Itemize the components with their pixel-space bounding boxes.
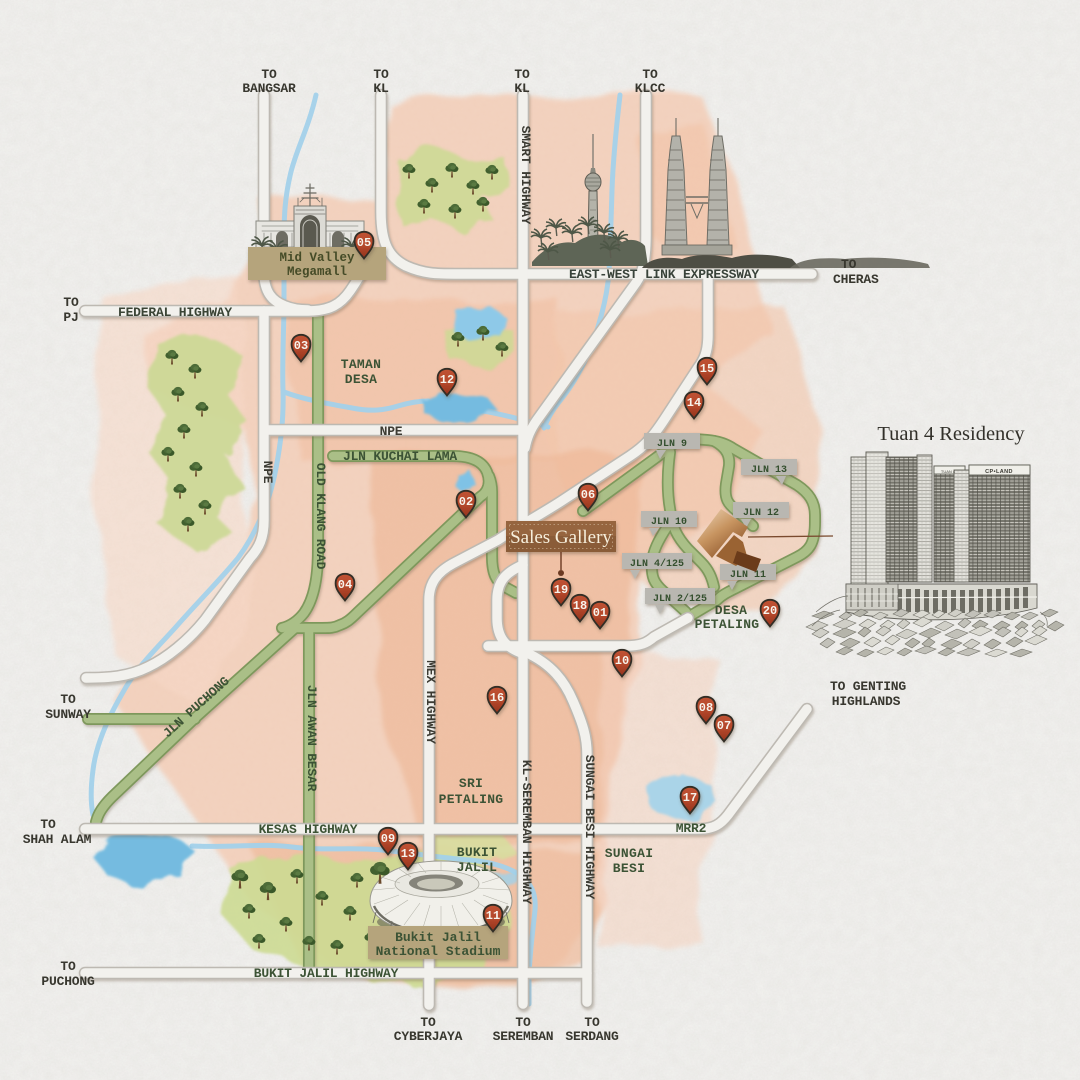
svg-text:08: 08 [699, 701, 713, 715]
svg-text:TO: TO [642, 67, 658, 82]
svg-text:TO GENTING: TO GENTING [830, 679, 906, 694]
svg-text:TO: TO [63, 295, 79, 310]
svg-text:TO: TO [60, 959, 76, 974]
svg-text:06: 06 [581, 488, 595, 502]
svg-text:NPE: NPE [380, 424, 403, 439]
svg-text:17: 17 [683, 791, 697, 805]
svg-text:SMART HIGHWAY: SMART HIGHWAY [518, 126, 533, 225]
svg-text:Mid Valley: Mid Valley [279, 251, 355, 265]
svg-text:11: 11 [486, 909, 500, 923]
svg-text:TAMAN: TAMAN [341, 357, 382, 372]
svg-text:FEDERAL HIGHWAY: FEDERAL HIGHWAY [118, 305, 232, 320]
svg-text:TO: TO [514, 67, 530, 82]
svg-text:TO: TO [584, 1015, 600, 1030]
svg-text:20: 20 [763, 604, 777, 618]
svg-text:Megamall: Megamall [287, 265, 347, 279]
svg-text:CP•LAND: CP•LAND [985, 469, 1013, 475]
svg-text:TO: TO [261, 67, 277, 82]
svg-text:BESI: BESI [613, 861, 645, 876]
svg-text:SERDANG: SERDANG [565, 1029, 619, 1044]
svg-text:JALIL: JALIL [457, 860, 498, 875]
svg-text:KL: KL [514, 81, 530, 96]
svg-text:CHERAS: CHERAS [833, 272, 879, 287]
svg-text:15: 15 [700, 362, 714, 376]
svg-text:MEX HIGHWAY: MEX HIGHWAY [423, 660, 438, 744]
svg-text:TO: TO [373, 67, 389, 82]
svg-text:09: 09 [381, 832, 395, 846]
svg-text:Sales Gallery: Sales Gallery [510, 527, 612, 548]
svg-text:14: 14 [687, 396, 701, 410]
svg-text:CYBERJAYA: CYBERJAYA [394, 1029, 463, 1044]
svg-text:KESAS HIGHWAY: KESAS HIGHWAY [259, 822, 358, 837]
svg-text:EAST-WEST LINK EXPRESSWAY: EAST-WEST LINK EXPRESSWAY [569, 267, 759, 282]
svg-text:JLN 10: JLN 10 [651, 517, 687, 528]
svg-text:Bukit Jalil: Bukit Jalil [395, 930, 481, 945]
svg-text:19: 19 [554, 583, 568, 597]
svg-text:JLN 9: JLN 9 [657, 439, 687, 450]
svg-text:JLN 11: JLN 11 [730, 570, 766, 581]
svg-text:07: 07 [717, 719, 731, 733]
svg-text:PETALING: PETALING [695, 617, 760, 632]
svg-text:18: 18 [573, 599, 587, 613]
svg-text:NPE: NPE [260, 461, 275, 484]
svg-text:JLN 13: JLN 13 [751, 465, 787, 476]
svg-text:01: 01 [593, 606, 607, 620]
svg-text:12: 12 [440, 373, 454, 387]
svg-text:13: 13 [401, 847, 415, 861]
svg-text:DESA: DESA [345, 372, 377, 387]
svg-text:SRI: SRI [459, 776, 483, 791]
svg-text:TUAN 4: TUAN 4 [941, 469, 956, 474]
svg-text:PETALING: PETALING [439, 792, 504, 807]
svg-text:TO: TO [420, 1015, 436, 1030]
svg-text:OLD KLANG ROAD: OLD KLANG ROAD [313, 463, 328, 570]
svg-text:JLN 12: JLN 12 [743, 508, 779, 519]
svg-text:TO: TO [60, 692, 76, 707]
svg-text:SUNGAI BESI HIGHWAY: SUNGAI BESI HIGHWAY [582, 755, 597, 900]
svg-text:16: 16 [490, 691, 504, 705]
svg-text:National Stadium: National Stadium [376, 944, 501, 959]
svg-text:TO: TO [841, 257, 857, 272]
svg-text:MRR2: MRR2 [676, 821, 707, 836]
svg-text:KL: KL [373, 81, 389, 96]
svg-text:Tuan 4 Residency: Tuan 4 Residency [877, 423, 1025, 445]
svg-text:JLN KUCHAI LAMA: JLN KUCHAI LAMA [343, 449, 457, 464]
svg-text:05: 05 [357, 236, 371, 250]
svg-text:BUKIT: BUKIT [457, 845, 498, 860]
svg-text:JLN 2/125: JLN 2/125 [653, 593, 707, 605]
svg-text:TO: TO [40, 817, 56, 832]
svg-text:04: 04 [338, 578, 352, 592]
svg-text:PUCHONG: PUCHONG [41, 974, 95, 989]
svg-text:SEREMBAN: SEREMBAN [493, 1029, 554, 1044]
svg-text:JLN AWAN BESAR: JLN AWAN BESAR [304, 685, 319, 792]
svg-text:10: 10 [615, 654, 629, 668]
svg-text:DESA: DESA [715, 603, 747, 618]
svg-text:PJ: PJ [63, 310, 78, 325]
svg-text:SUNGAI: SUNGAI [605, 846, 654, 861]
svg-text:BANGSAR: BANGSAR [242, 81, 296, 96]
svg-text:SHAH ALAM: SHAH ALAM [23, 832, 92, 847]
svg-text:BUKIT JALIL HIGHWAY: BUKIT JALIL HIGHWAY [254, 966, 399, 981]
svg-text:03: 03 [294, 339, 308, 353]
svg-text:TO: TO [515, 1015, 531, 1030]
svg-text:KLCC: KLCC [635, 81, 666, 96]
svg-text:KL-SEREMBAN HIGHWAY: KL-SEREMBAN HIGHWAY [519, 760, 534, 905]
svg-text:HIGHLANDS: HIGHLANDS [832, 694, 901, 709]
svg-text:02: 02 [459, 495, 473, 509]
svg-text:SUNWAY: SUNWAY [45, 707, 91, 722]
svg-text:JLN 4/125: JLN 4/125 [630, 558, 684, 570]
